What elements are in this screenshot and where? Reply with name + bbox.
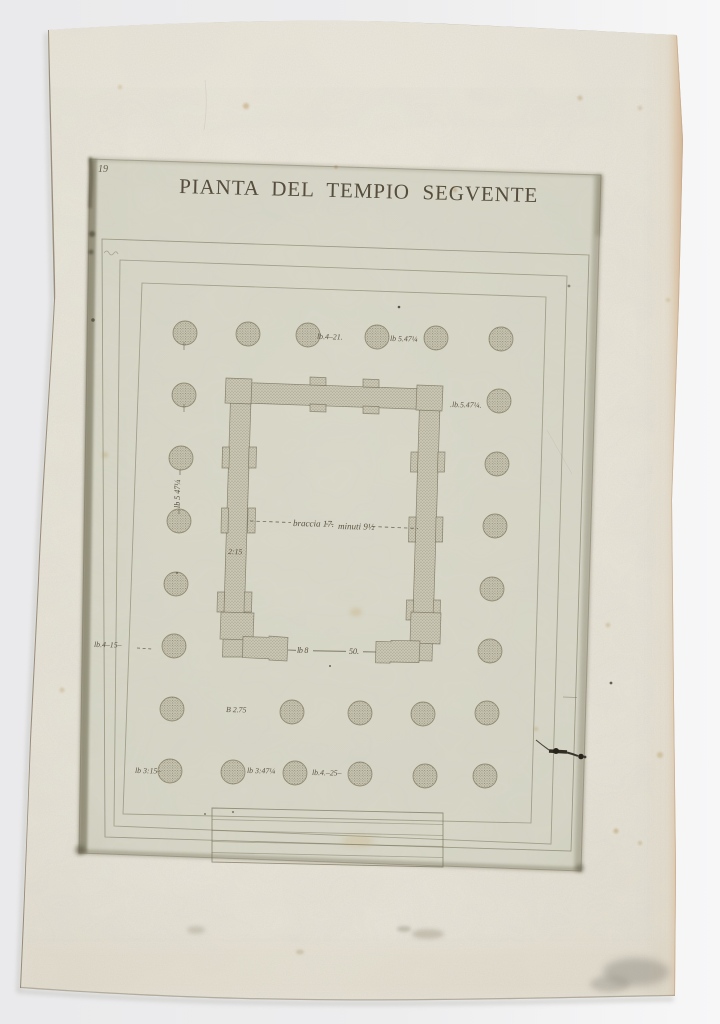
svg-text:lb 5 47¼: lb 5 47¼: [173, 480, 182, 508]
svg-text:lb 3:15–: lb 3:15–: [135, 766, 161, 776]
svg-text:lb.4–21.: lb.4–21.: [317, 332, 343, 342]
svg-text:lb 3:47¼: lb 3:47¼: [247, 766, 275, 776]
svg-text:50.: 50.: [349, 647, 359, 656]
svg-text:.lb.5.47¼.: .lb.5.47¼.: [450, 400, 482, 410]
svg-text:lb.4.–25–: lb.4.–25–: [312, 768, 342, 778]
svg-text:B 2.75: B 2.75: [226, 705, 247, 714]
svg-text:lb.4–15–: lb.4–15–: [94, 640, 122, 650]
svg-text:lb 8: lb 8: [297, 646, 308, 655]
svg-text:lb 5.47¼: lb 5.47¼: [390, 334, 418, 344]
svg-text:braccia 17.: braccia 17.: [293, 518, 334, 529]
svg-text:minuti 9½: minuti 9½: [338, 521, 375, 532]
svg-text:19: 19: [98, 164, 108, 175]
svg-text:2:15: 2:15: [228, 547, 243, 556]
